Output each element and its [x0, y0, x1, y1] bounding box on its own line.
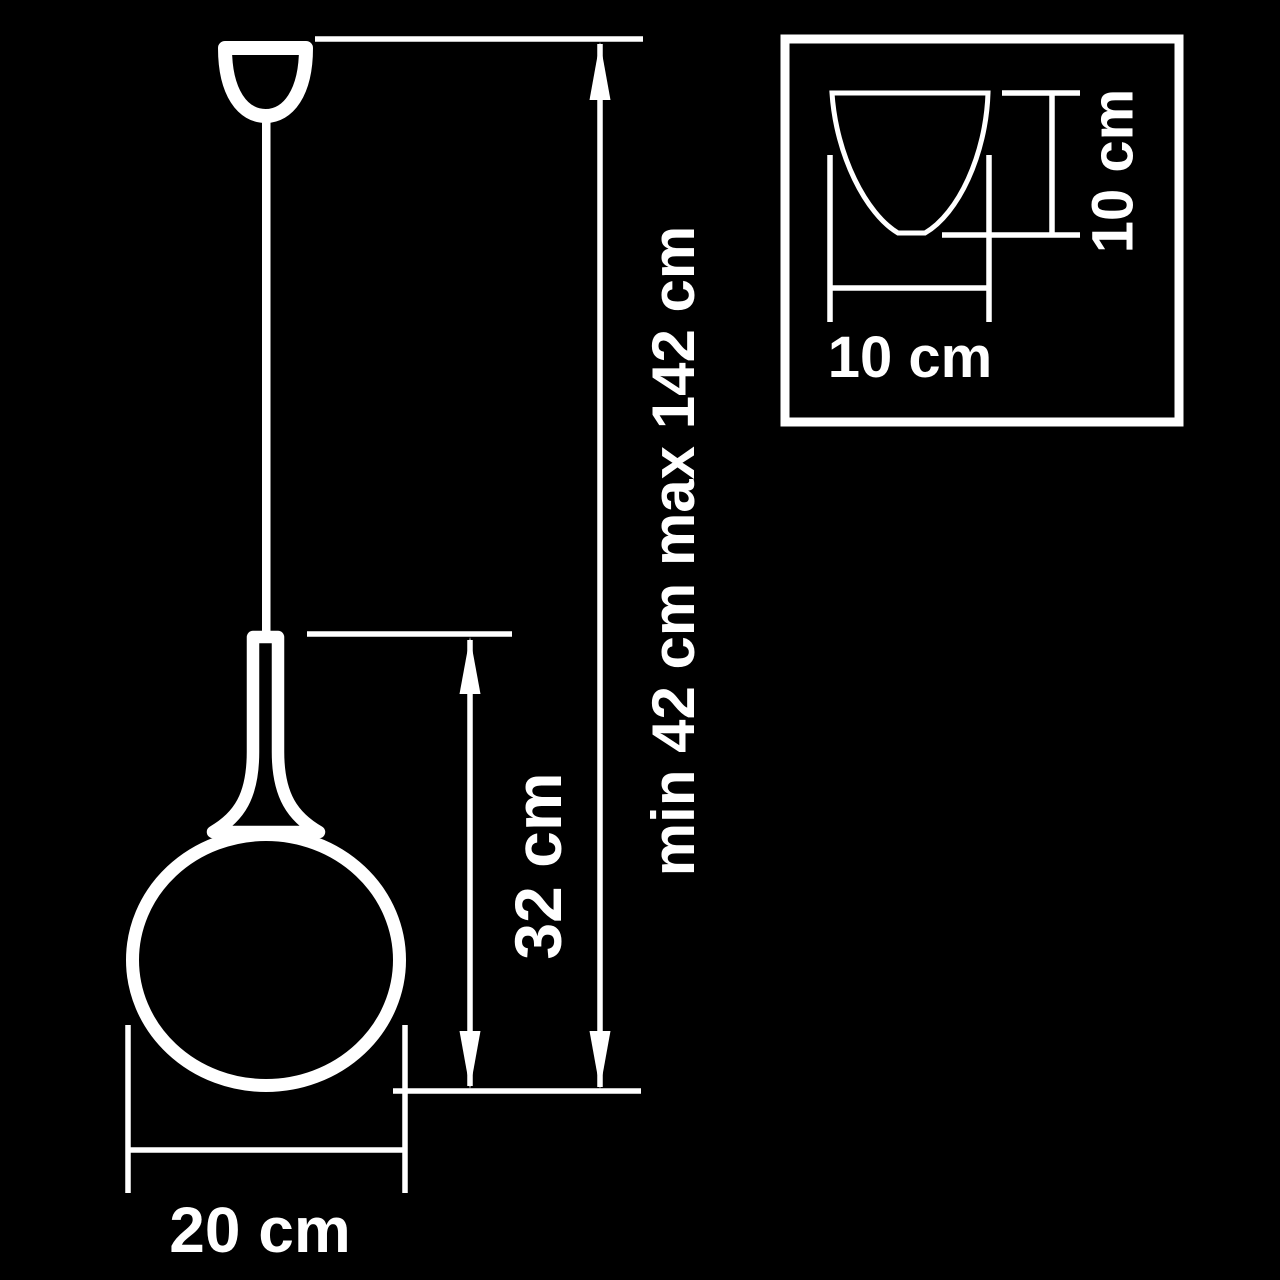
dimension-diagram: min 42 cm max 142 cm 32 cm 20 cm 10 cm: [0, 0, 1280, 1280]
overall-height-label: min 42 cm max 142 cm: [640, 226, 707, 876]
lamp-globe-shade: [133, 835, 400, 1086]
suspension-wire: [262, 116, 271, 642]
arrow-up-icon: [590, 42, 611, 100]
arrow-down-icon: [590, 1031, 611, 1089]
pendant-lamp-dimension-drawing: min 42 cm max 142 cm 32 cm 20 cm 10 cm: [0, 0, 1280, 1280]
shade-diameter-label: 20 cm: [169, 1194, 350, 1266]
inset-canopy-height-label: 10 cm: [1080, 89, 1145, 253]
lamp-cone-neck: [213, 637, 319, 832]
inset-canopy-width-label: 10 cm: [828, 325, 992, 390]
arrow-up-icon: [460, 637, 481, 694]
canopy-detail-inset: 10 cm 10 cm: [785, 39, 1179, 422]
arrow-down-icon: [460, 1031, 481, 1089]
pendant-lamp-drawing: [133, 48, 400, 1086]
fixture-height-label: 32 cm: [501, 772, 575, 959]
ceiling-canopy: [225, 48, 306, 116]
